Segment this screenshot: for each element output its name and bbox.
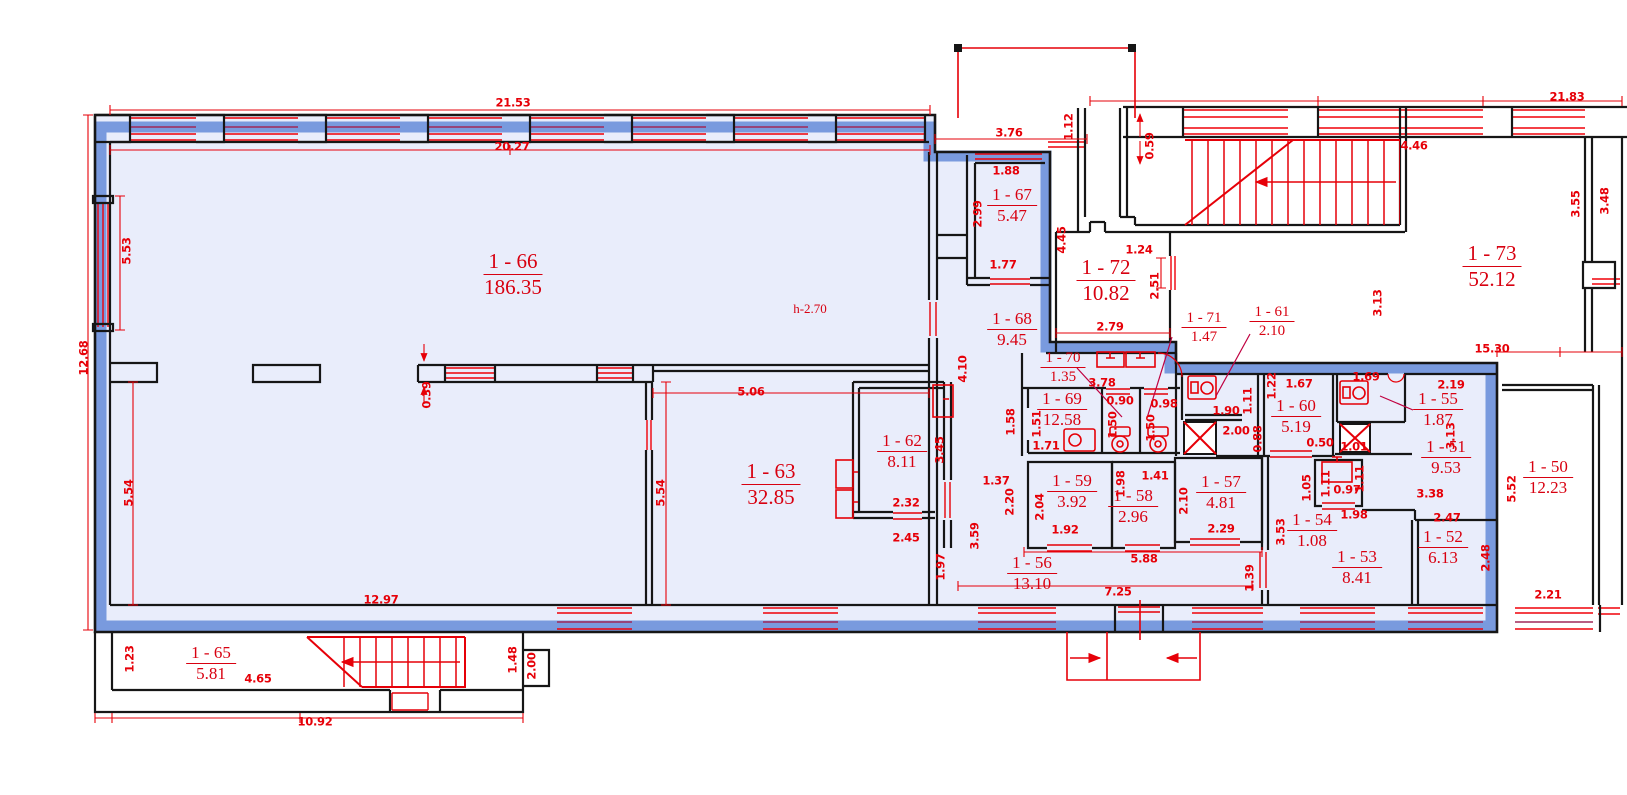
stairs-icon	[1185, 140, 1400, 225]
stairs-icon	[307, 637, 465, 687]
shaft-x-icon	[1184, 422, 1216, 454]
balcony-outline	[954, 44, 1136, 118]
shaft-x-icon	[1340, 424, 1370, 452]
floor-plan-canvas: h-2.70 1 - 66186.351 - 675.471 - 689.451…	[0, 0, 1627, 795]
floor-plan-drawing	[0, 0, 1627, 795]
